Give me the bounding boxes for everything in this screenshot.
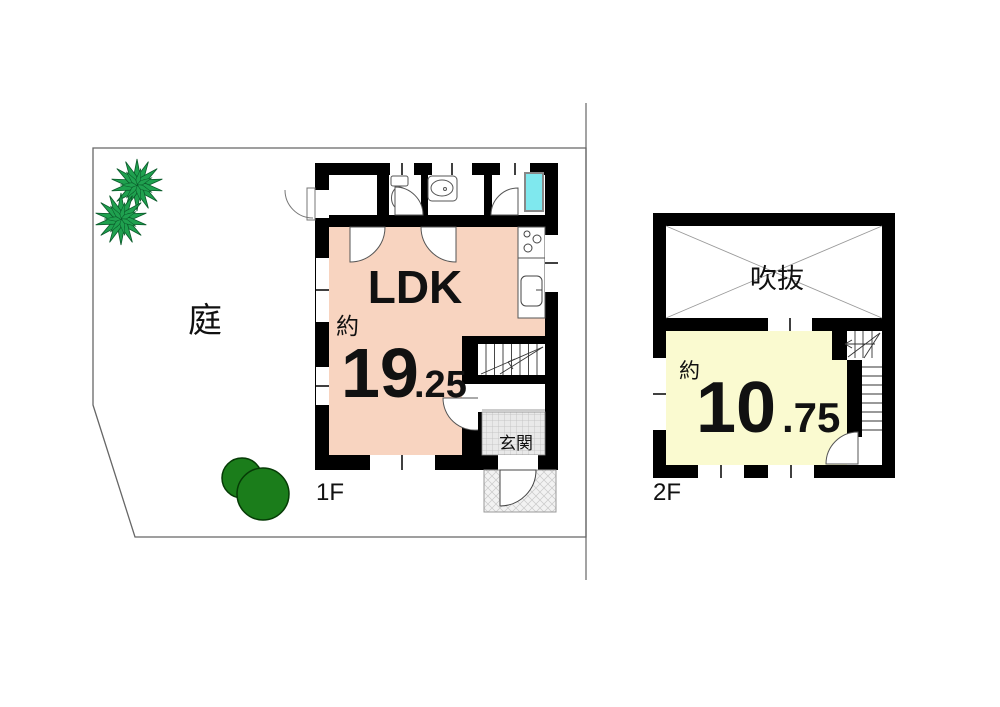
- void-label: 吹抜: [750, 264, 804, 294]
- room2f-area-int: 10: [696, 368, 776, 448]
- side-door-leaf: [307, 188, 315, 220]
- floor2-plan: 吹抜 約 10 .75 2F: [653, 213, 895, 506]
- floor1-label: 1F: [316, 479, 344, 506]
- room2f-area-dec: .75: [782, 394, 840, 441]
- kitchen-counter: [518, 227, 545, 318]
- partition-wall: [377, 175, 389, 215]
- window-bottom-2f-1: [698, 465, 744, 478]
- partition-wall: [484, 175, 492, 215]
- window-bottom-2f-2: [768, 465, 814, 478]
- window-left-2f: [653, 358, 666, 430]
- side-door-gap: [315, 190, 329, 218]
- floor-plan-image: 庭: [0, 0, 1000, 707]
- kitchen-sink-unit: [518, 258, 545, 318]
- washbasin-icon: [428, 176, 457, 201]
- window-top-washroom: [432, 163, 472, 175]
- ldk-label: LDK: [368, 261, 463, 313]
- floor2-label: 2F: [653, 479, 681, 506]
- bathtub-icon: [524, 172, 544, 212]
- ldk-area-int: 19: [341, 334, 419, 412]
- window-left-2: [316, 367, 329, 405]
- bush-2: [237, 468, 289, 520]
- entrance-door-gap: [498, 455, 538, 470]
- ldk-area-dec: .25: [414, 364, 467, 406]
- void-opening: [768, 318, 812, 331]
- genkan-label: 玄関: [499, 434, 533, 453]
- window-bottom-ldk: [370, 455, 435, 470]
- floor1-plan: LDK 約 19 .25 玄関 1F: [285, 163, 558, 512]
- floor-plan-svg: 庭: [0, 0, 1000, 707]
- window-left-1: [316, 258, 329, 322]
- garden-label: 庭: [188, 302, 222, 340]
- window-top-toilet: [390, 163, 414, 175]
- kitchen-window: [545, 235, 558, 292]
- staircase-1f: [478, 344, 545, 375]
